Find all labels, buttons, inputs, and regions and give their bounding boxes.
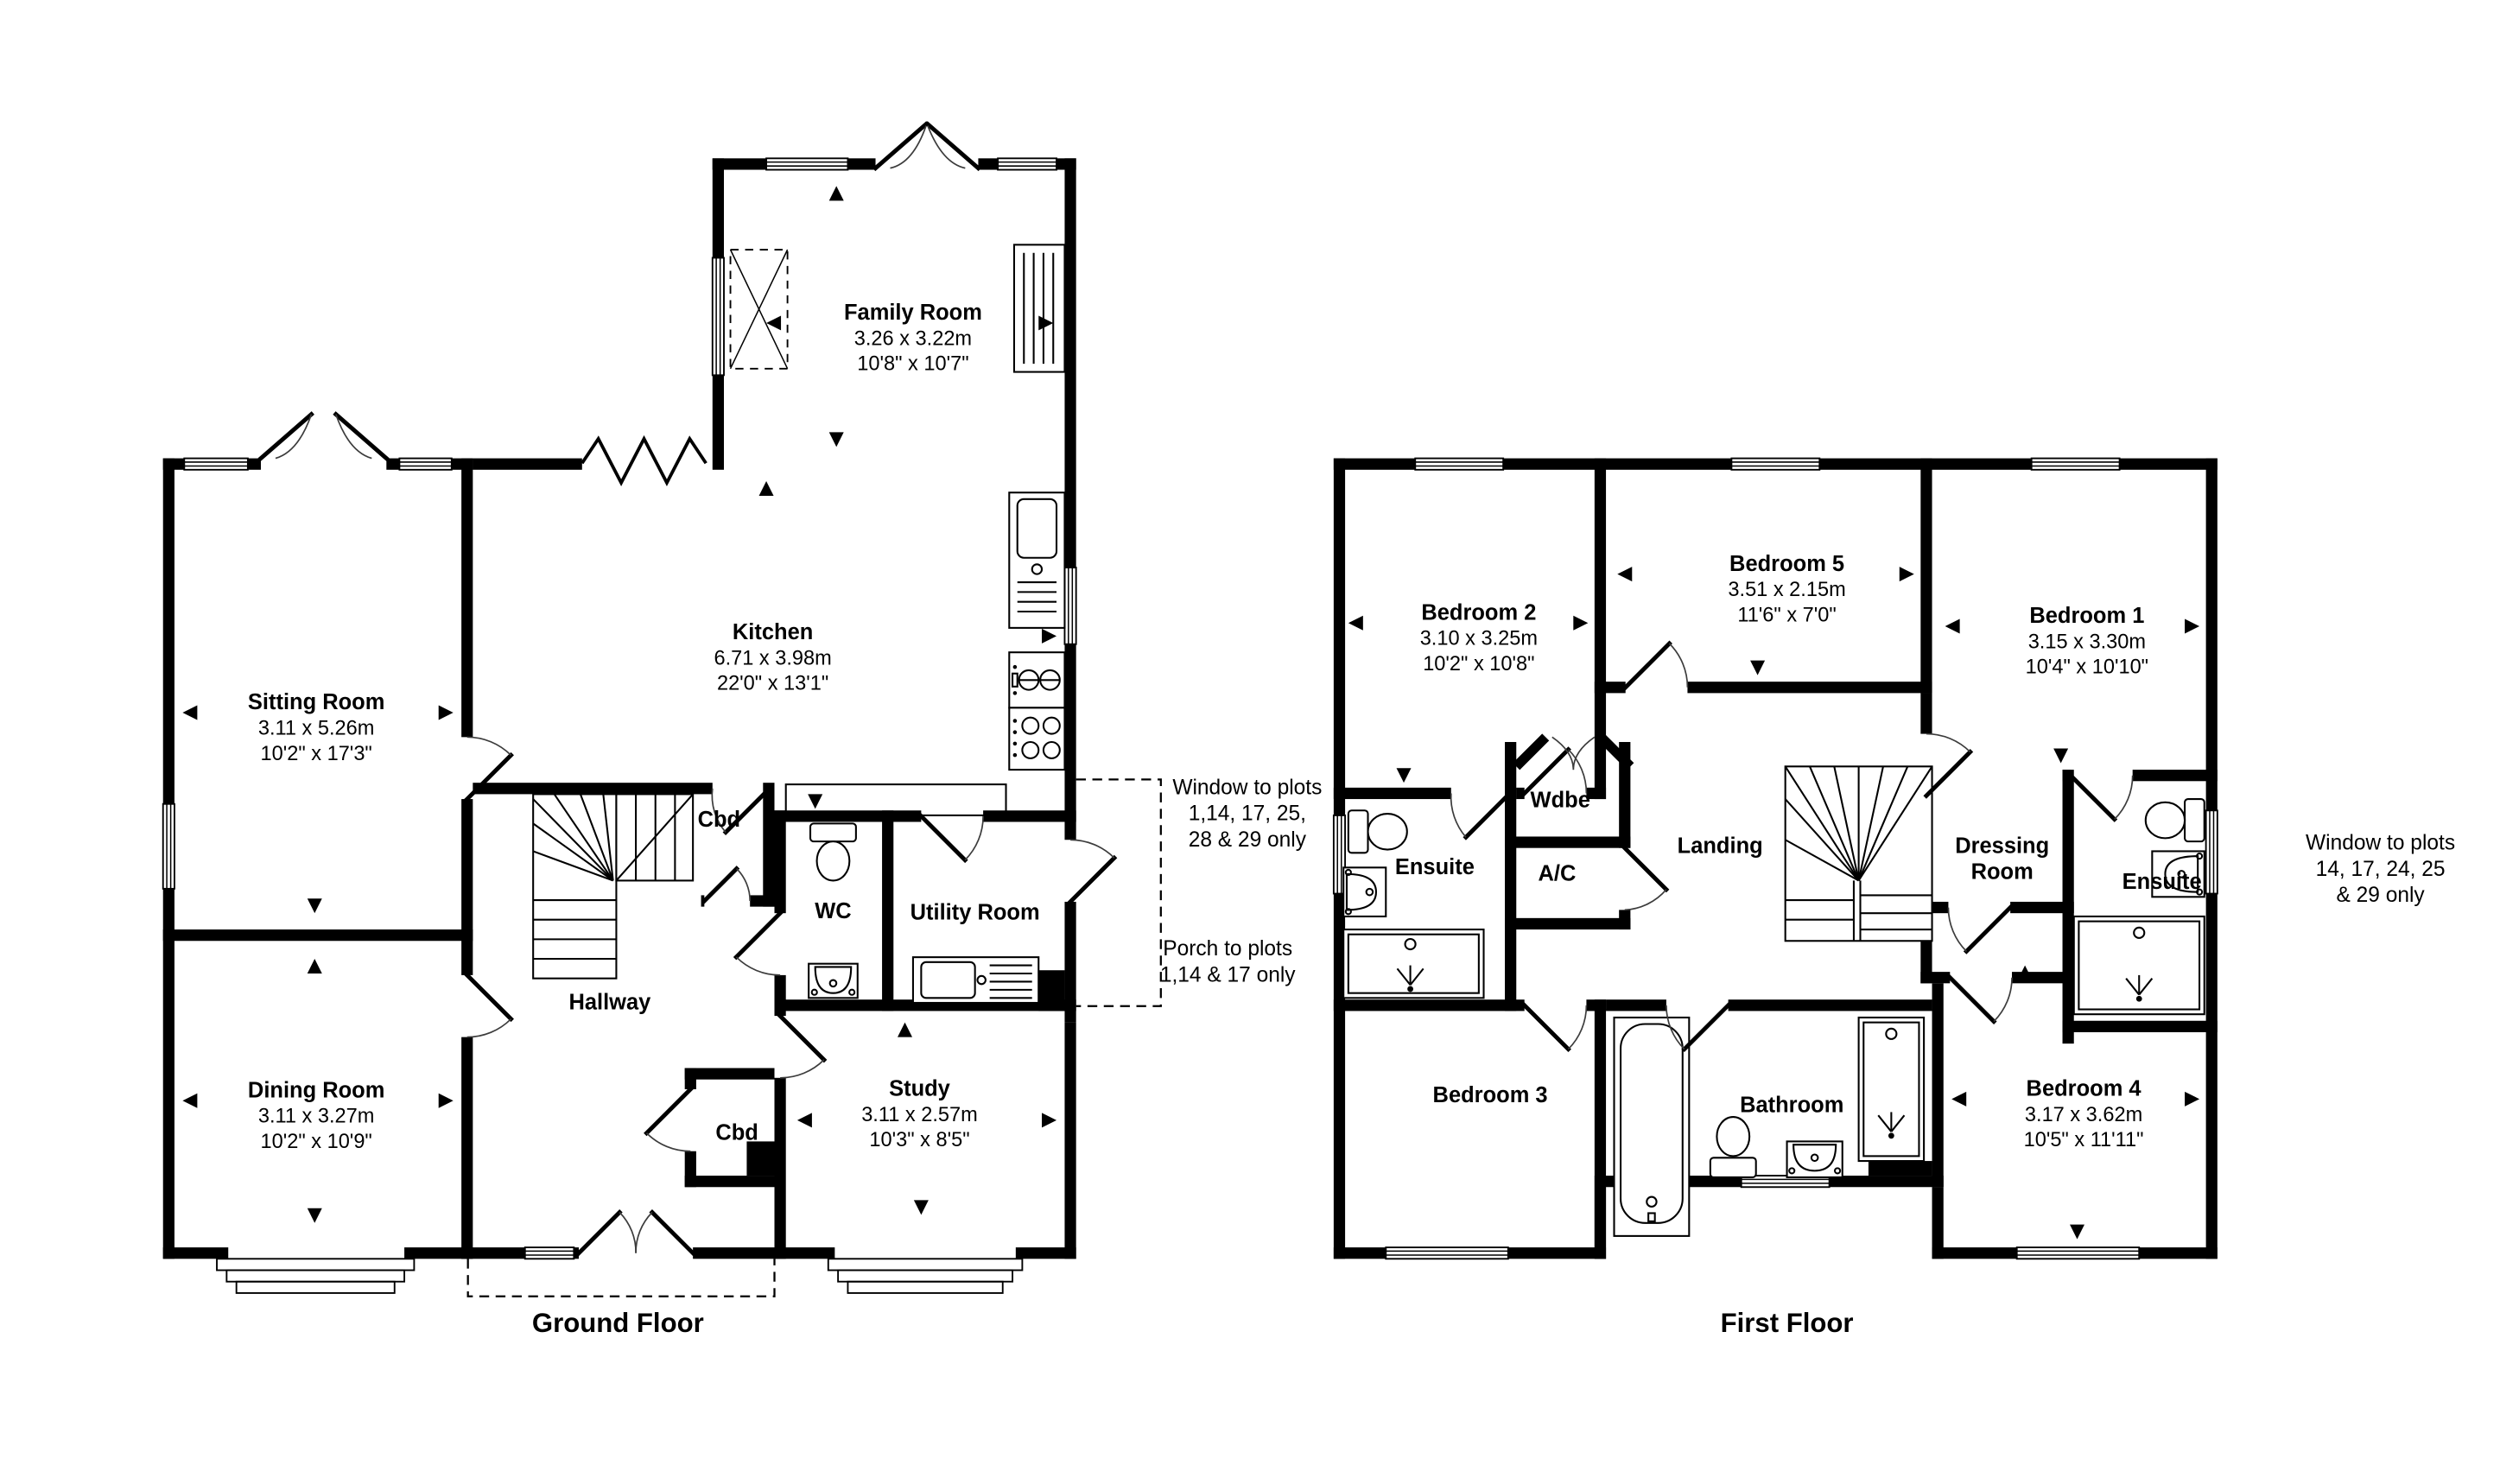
ff-window-note-1: Window to plots: [2306, 832, 2455, 855]
bedroom-1-label: Bedroom 1: [2029, 604, 2144, 628]
ground-floor-plan: Family Room 3.26 x 3.22m 10'8" x 10'7" S…: [163, 124, 1323, 1339]
door: [1451, 793, 1510, 837]
door: [736, 913, 780, 975]
window: [2032, 459, 2120, 470]
dining-room-imperial: 10'2" x 10'9": [260, 1130, 371, 1152]
sitting-room-label: Sitting Room: [248, 690, 384, 714]
door: [2071, 776, 2133, 820]
window: [1415, 459, 1503, 470]
landing-label: Landing: [1678, 834, 1763, 858]
window: [163, 804, 174, 889]
window: [1386, 1247, 1508, 1259]
bathroom-fixtures: [1615, 1018, 1925, 1236]
dining-room-label: Dining Room: [248, 1078, 384, 1102]
door: [921, 816, 983, 860]
bedroom-2-imperial: 10'2" x 10'8": [1423, 652, 1534, 675]
window: [1064, 568, 1075, 644]
bedroom-1-metric: 3.15 x 3.30m: [2028, 630, 2146, 652]
family-room-imperial: 10'8" x 10'7": [857, 352, 968, 375]
ensuite-left-fixtures: [1343, 810, 1483, 998]
ground-floor-stairs: [533, 794, 693, 978]
ff-window-note-3: & 29 only: [2336, 884, 2425, 907]
study-bay-window: [828, 1259, 1023, 1293]
toilet-cistern: [1348, 810, 1368, 853]
study-imperial: 10'3" x 8'5": [869, 1128, 969, 1151]
cupboard-understairs-label: Cbd: [698, 808, 741, 832]
hob: [1009, 652, 1064, 770]
window: [713, 257, 724, 375]
basin: [1787, 1141, 1843, 1177]
kitchen-metric: 6.71 x 3.98m: [714, 646, 831, 669]
dining-room-metric: 3.11 x 3.27m: [258, 1105, 375, 1127]
optional-window-outline: [1076, 779, 1161, 1005]
bathtub: [1615, 1018, 1690, 1236]
door: [1926, 734, 1970, 796]
bedroom-4-imperial: 10'5" x 11'11": [2024, 1128, 2144, 1151]
bedroom-3-label: Bedroom 3: [1433, 1083, 1548, 1107]
door: [1070, 840, 1114, 902]
dressing-room-label-2: Room: [1971, 860, 2034, 885]
sitting-room-imperial: 10'2" x 17'3": [260, 742, 371, 764]
utility-sink: [913, 957, 1038, 1003]
toilet-cistern: [1710, 1157, 1756, 1177]
floorplan-page: Family Room 3.26 x 3.22m 10'8" x 10'7" S…: [0, 0, 2519, 1484]
door: [780, 1016, 824, 1078]
door: [1948, 908, 2010, 952]
porch-outline: [468, 1259, 775, 1296]
window: [1731, 459, 1819, 470]
ensuite-left-label: Ensuite: [1395, 855, 1475, 879]
tall-unit: [1014, 244, 1065, 371]
bedroom-4-metric: 3.17 x 3.62m: [2025, 1103, 2142, 1126]
bedroom-5-label: Bedroom 5: [1729, 552, 1844, 576]
wc-label: WC: [815, 899, 851, 923]
dressing-room-label-1: Dressing: [1955, 834, 2049, 858]
toilet-bowl: [1368, 814, 1407, 850]
utility-room-label: Utility Room: [911, 901, 1040, 925]
door: [467, 975, 511, 1037]
study-label: Study: [889, 1077, 951, 1101]
front-door: [579, 1213, 693, 1253]
first-floor-stairs: [1786, 766, 1932, 941]
gf-window-note-3: 28 & 29 only: [1189, 828, 1307, 852]
kitchen-imperial: 22'0" x 13'1": [717, 672, 828, 694]
window: [2206, 810, 2218, 893]
window: [2017, 1247, 2140, 1259]
family-room-metric: 3.26 x 3.22m: [854, 327, 972, 349]
bedroom-1-imperial: 10'4" x 10'10": [2026, 656, 2148, 678]
cupboard-entrance-label: Cbd: [715, 1121, 758, 1145]
gf-porch-note-1: Porch to plots: [1163, 937, 1292, 961]
window: [766, 158, 847, 169]
toilet-bowl: [817, 841, 850, 880]
wall-break-symbol: [582, 439, 706, 483]
first-floor-title: First Floor: [1721, 1308, 1854, 1338]
basin: [1343, 867, 1386, 916]
ensuite-right-fixtures: [2074, 799, 2205, 1014]
ground-floor-title: Ground Floor: [532, 1308, 704, 1338]
toilet-bowl: [2146, 802, 2185, 839]
door: [647, 1089, 691, 1151]
first-floor-plan: Bedroom 2 3.10 x 3.25m 10'2" x 10'8" Bed…: [1334, 459, 2455, 1339]
bathroom-label: Bathroom: [1740, 1093, 1843, 1117]
bedroom-2-label: Bedroom 2: [1421, 600, 1536, 625]
door: [1625, 848, 1666, 910]
basin: [809, 964, 858, 999]
toilet-bowl: [1716, 1117, 1749, 1156]
ensuite-right-label: Ensuite: [2122, 870, 2202, 894]
kitchen-label: Kitchen: [733, 620, 813, 644]
toilet-cistern: [810, 823, 856, 841]
shower: [1859, 1018, 1924, 1161]
wardrobe-label: Wdbe: [1531, 788, 1590, 812]
dining-bay-window: [217, 1259, 414, 1293]
door: [1626, 644, 1688, 688]
window: [184, 459, 248, 470]
kitchen-sink: [1009, 492, 1064, 628]
family-room-label: Family Room: [844, 301, 982, 325]
shower: [2074, 916, 2205, 1014]
gf-window-note-2: 1,14, 17, 25,: [1189, 802, 1306, 826]
window: [525, 1247, 574, 1259]
bedroom-4-label: Bedroom 4: [2027, 1077, 2142, 1101]
shower: [1343, 929, 1483, 998]
sitting-room-metric: 3.11 x 5.26m: [258, 717, 375, 739]
bedroom-5-metric: 3.51 x 2.15m: [1728, 578, 1845, 600]
door: [1525, 1005, 1587, 1050]
patio-door: [876, 124, 979, 168]
floorplan-canvas: Family Room 3.26 x 3.22m 10'8" x 10'7" S…: [0, 0, 2519, 1484]
gf-window-note-1: Window to plots: [1172, 776, 1322, 799]
wardrobe-doors: [1552, 737, 1595, 770]
bedroom-5-imperial: 11'6" x 7'0": [1737, 603, 1836, 625]
hallway-label: Hallway: [568, 991, 651, 1015]
gf-porch-note-2: 1,14 & 17 only: [1160, 963, 1296, 986]
bedroom-2-metric: 3.10 x 3.25m: [1420, 627, 1538, 650]
window: [399, 459, 451, 470]
study-metric: 3.11 x 2.57m: [861, 1103, 978, 1126]
patio-door: [261, 415, 386, 459]
airing-cupboard-label: A/C: [1539, 861, 1577, 885]
toilet-cistern: [2185, 799, 2205, 841]
ff-window-note-2: 14, 17, 24, 25: [2316, 858, 2446, 881]
rooflight-symbol: [731, 250, 788, 369]
door: [1950, 978, 2012, 1022]
window: [998, 158, 1056, 169]
door: [704, 869, 750, 901]
